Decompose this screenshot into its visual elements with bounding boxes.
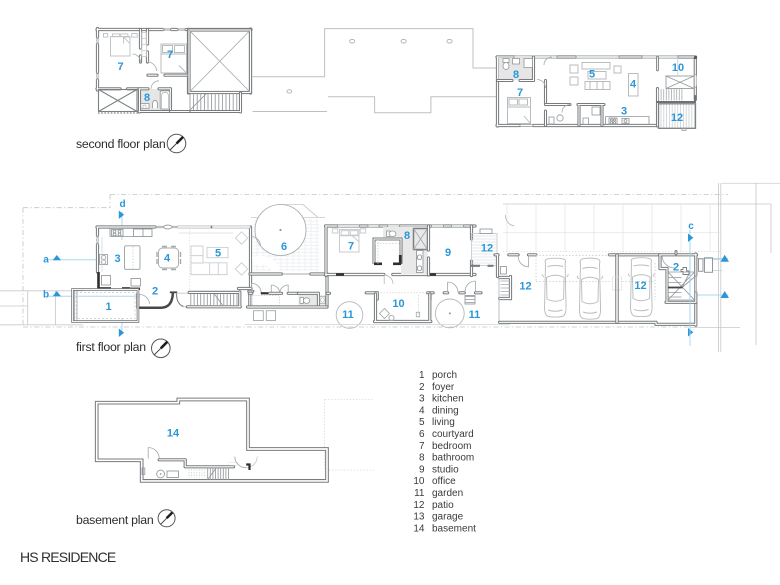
svg-text:14: 14	[167, 428, 180, 440]
svg-text:porch: porch	[432, 370, 457, 381]
svg-text:3: 3	[419, 394, 425, 405]
svg-text:6: 6	[281, 241, 287, 253]
svg-text:living: living	[432, 417, 455, 428]
svg-text:7: 7	[167, 49, 173, 61]
svg-text:first floor plan: first floor plan	[76, 340, 146, 354]
svg-text:12: 12	[671, 112, 683, 124]
svg-text:5: 5	[589, 69, 595, 81]
svg-text:6: 6	[419, 429, 425, 440]
svg-text:10: 10	[392, 298, 404, 310]
svg-text:12: 12	[634, 280, 646, 292]
svg-text:2: 2	[673, 262, 679, 274]
svg-text:11: 11	[414, 488, 425, 499]
svg-text:HS RESIDENCE: HS RESIDENCE	[20, 549, 116, 565]
svg-text:4: 4	[164, 253, 171, 265]
svg-text:4: 4	[630, 79, 637, 91]
svg-text:1: 1	[419, 370, 425, 381]
svg-text:a: a	[43, 255, 49, 266]
svg-text:courtyard: courtyard	[432, 429, 474, 440]
svg-text:7: 7	[419, 441, 425, 452]
svg-text:4: 4	[419, 405, 425, 416]
svg-text:basement: basement	[432, 523, 476, 534]
svg-text:patio: patio	[432, 500, 454, 511]
svg-text:kitchen: kitchen	[432, 394, 464, 405]
svg-text:3: 3	[114, 253, 120, 265]
svg-text:14: 14	[413, 523, 425, 534]
svg-text:8: 8	[419, 453, 425, 464]
svg-text:office: office	[432, 476, 456, 487]
svg-text:5: 5	[419, 417, 425, 428]
svg-text:7: 7	[348, 241, 354, 253]
svg-text:2: 2	[152, 286, 158, 298]
svg-text:foyer: foyer	[432, 382, 455, 393]
svg-text:11: 11	[469, 309, 481, 321]
svg-text:11: 11	[342, 309, 354, 321]
svg-text:garage: garage	[432, 512, 464, 523]
svg-text:7: 7	[517, 87, 523, 99]
svg-text:studio: studio	[432, 464, 459, 475]
svg-text:8: 8	[513, 69, 519, 81]
svg-text:basement plan: basement plan	[76, 513, 154, 527]
svg-text:garden: garden	[432, 488, 463, 499]
svg-text:13: 13	[413, 512, 425, 523]
svg-text:12: 12	[481, 243, 493, 255]
svg-text:b: b	[43, 290, 49, 301]
svg-text:8: 8	[144, 92, 150, 104]
svg-text:c: c	[688, 221, 694, 232]
svg-text:dining: dining	[432, 405, 459, 416]
svg-text:10: 10	[413, 476, 425, 487]
svg-text:3: 3	[621, 106, 627, 118]
svg-text:d: d	[119, 199, 125, 210]
svg-text:5: 5	[215, 248, 221, 260]
svg-text:9: 9	[445, 247, 451, 259]
svg-text:bathroom: bathroom	[432, 453, 474, 464]
svg-text:second floor plan: second floor plan	[76, 137, 166, 151]
svg-text:1: 1	[105, 301, 111, 313]
svg-text:9: 9	[419, 464, 425, 475]
svg-text:2: 2	[419, 382, 425, 393]
svg-text:12: 12	[413, 500, 425, 511]
svg-text:12: 12	[519, 281, 531, 293]
svg-text:8: 8	[404, 230, 410, 242]
svg-text:bedroom: bedroom	[432, 441, 471, 452]
svg-text:7: 7	[117, 61, 123, 73]
